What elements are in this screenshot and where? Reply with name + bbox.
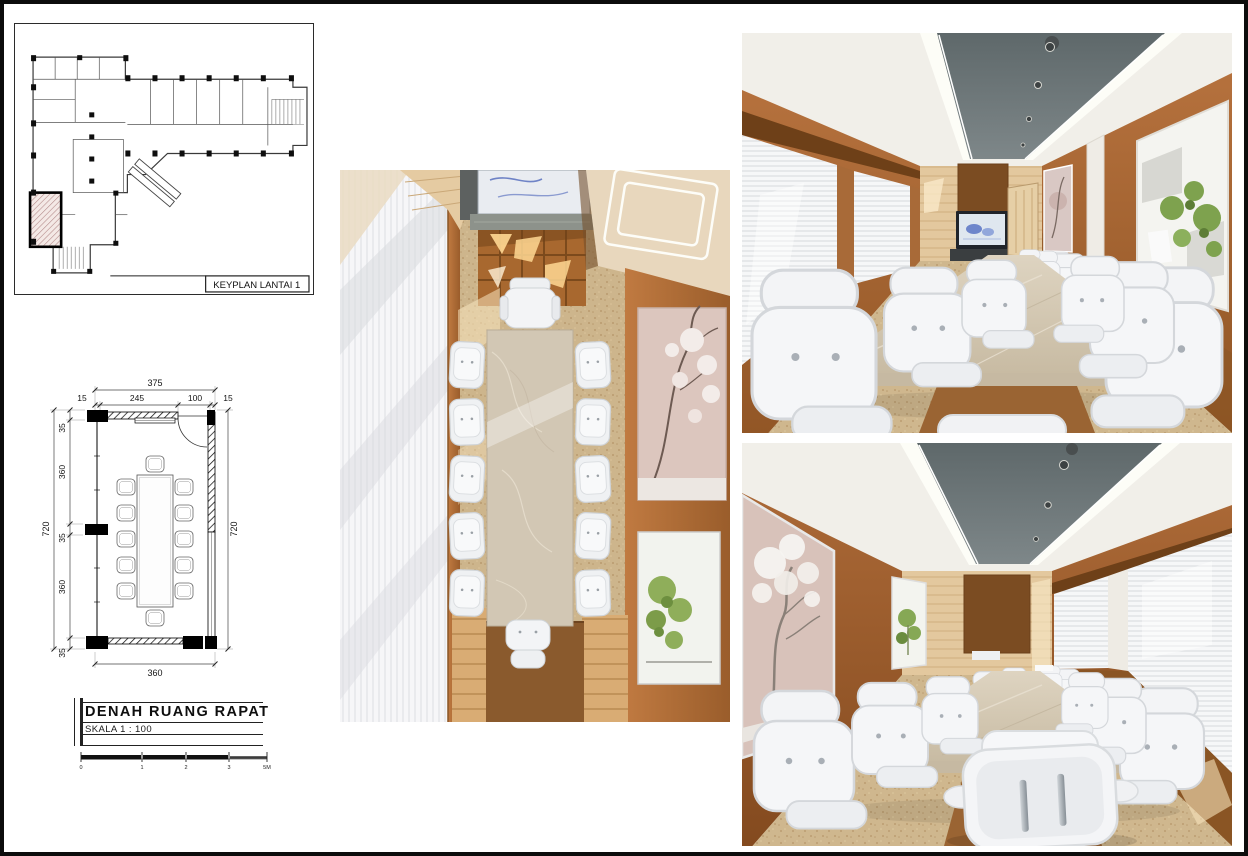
title-block: DENAH RUANG RAPAT SKALA 1 : 100 0 1 2 3 … (78, 696, 274, 780)
scale-tick-end: 5M (263, 765, 271, 771)
window-blinds-left (340, 170, 452, 722)
title-block-rule (81, 745, 263, 746)
render-perspective-front (742, 33, 1232, 433)
window-blinds-far (854, 171, 910, 284)
foreground-chair-back (938, 415, 1066, 433)
dim-right-total: 720 (229, 521, 239, 536)
keyplan-panel: KEYPLAN LANTAI 1 (14, 23, 314, 295)
dim-left-seg-5: 35 (57, 648, 67, 658)
plan-door (178, 416, 207, 447)
far-console (972, 651, 1000, 660)
dim-bottom: 360 (147, 668, 162, 678)
window-pillar (1108, 569, 1128, 671)
dim-left-seg-4: 360 (57, 580, 67, 594)
plan-meeting-table (137, 475, 173, 607)
presentation-screen-top (478, 170, 590, 214)
dim-top-seg-1: 15 (77, 393, 87, 403)
scale-tick-3: 3 (227, 765, 230, 771)
dim-left-seg-3: 35 (57, 533, 67, 543)
meeting-table-top-view (487, 330, 573, 626)
keyplan-drawing: KEYPLAN LANTAI 1 (15, 24, 313, 294)
presentation-sheet: KEYPLAN LANTAI 1 (0, 0, 1248, 856)
keyplan-room-highlight (30, 193, 61, 247)
render-top-view (340, 170, 730, 722)
foot-chair (506, 620, 550, 668)
floor-plan-panel: 375 15 245 100 15 720 35 360 35 360 35 7… (40, 372, 292, 682)
dim-top-seg-3: 100 (188, 393, 202, 403)
far-wall (920, 164, 1042, 261)
dim-top-seg-2: 245 (130, 393, 144, 403)
scale-tick-0: 0 (79, 765, 82, 771)
render-perspective-back (742, 443, 1232, 846)
dim-top-seg-4: 15 (223, 393, 233, 403)
dim-top-total: 375 (147, 378, 162, 388)
scale-bar: 0 1 2 3 5M (78, 748, 274, 778)
keyplan-label: KEYPLAN LANTAI 1 (213, 280, 300, 291)
painting-green-bottom (638, 532, 720, 684)
dim-left-seg-1: 35 (57, 423, 67, 433)
dim-left-total: 720 (41, 521, 51, 536)
door (1008, 183, 1038, 257)
scale-tick-2: 2 (184, 765, 187, 771)
scale-tick-1: 1 (140, 765, 143, 771)
floor-plan-drawing: 375 15 245 100 15 720 35 360 35 360 35 7… (40, 372, 292, 682)
keyplan-building-outline (33, 57, 307, 273)
drawing-title: DENAH RUANG RAPAT (85, 704, 269, 720)
dim-left-seg-2: 360 (57, 465, 67, 479)
painting-blossom-top (638, 306, 726, 500)
far-wall-panel (964, 575, 1030, 653)
drawing-scale: SKALA 1 : 100 (85, 724, 152, 735)
